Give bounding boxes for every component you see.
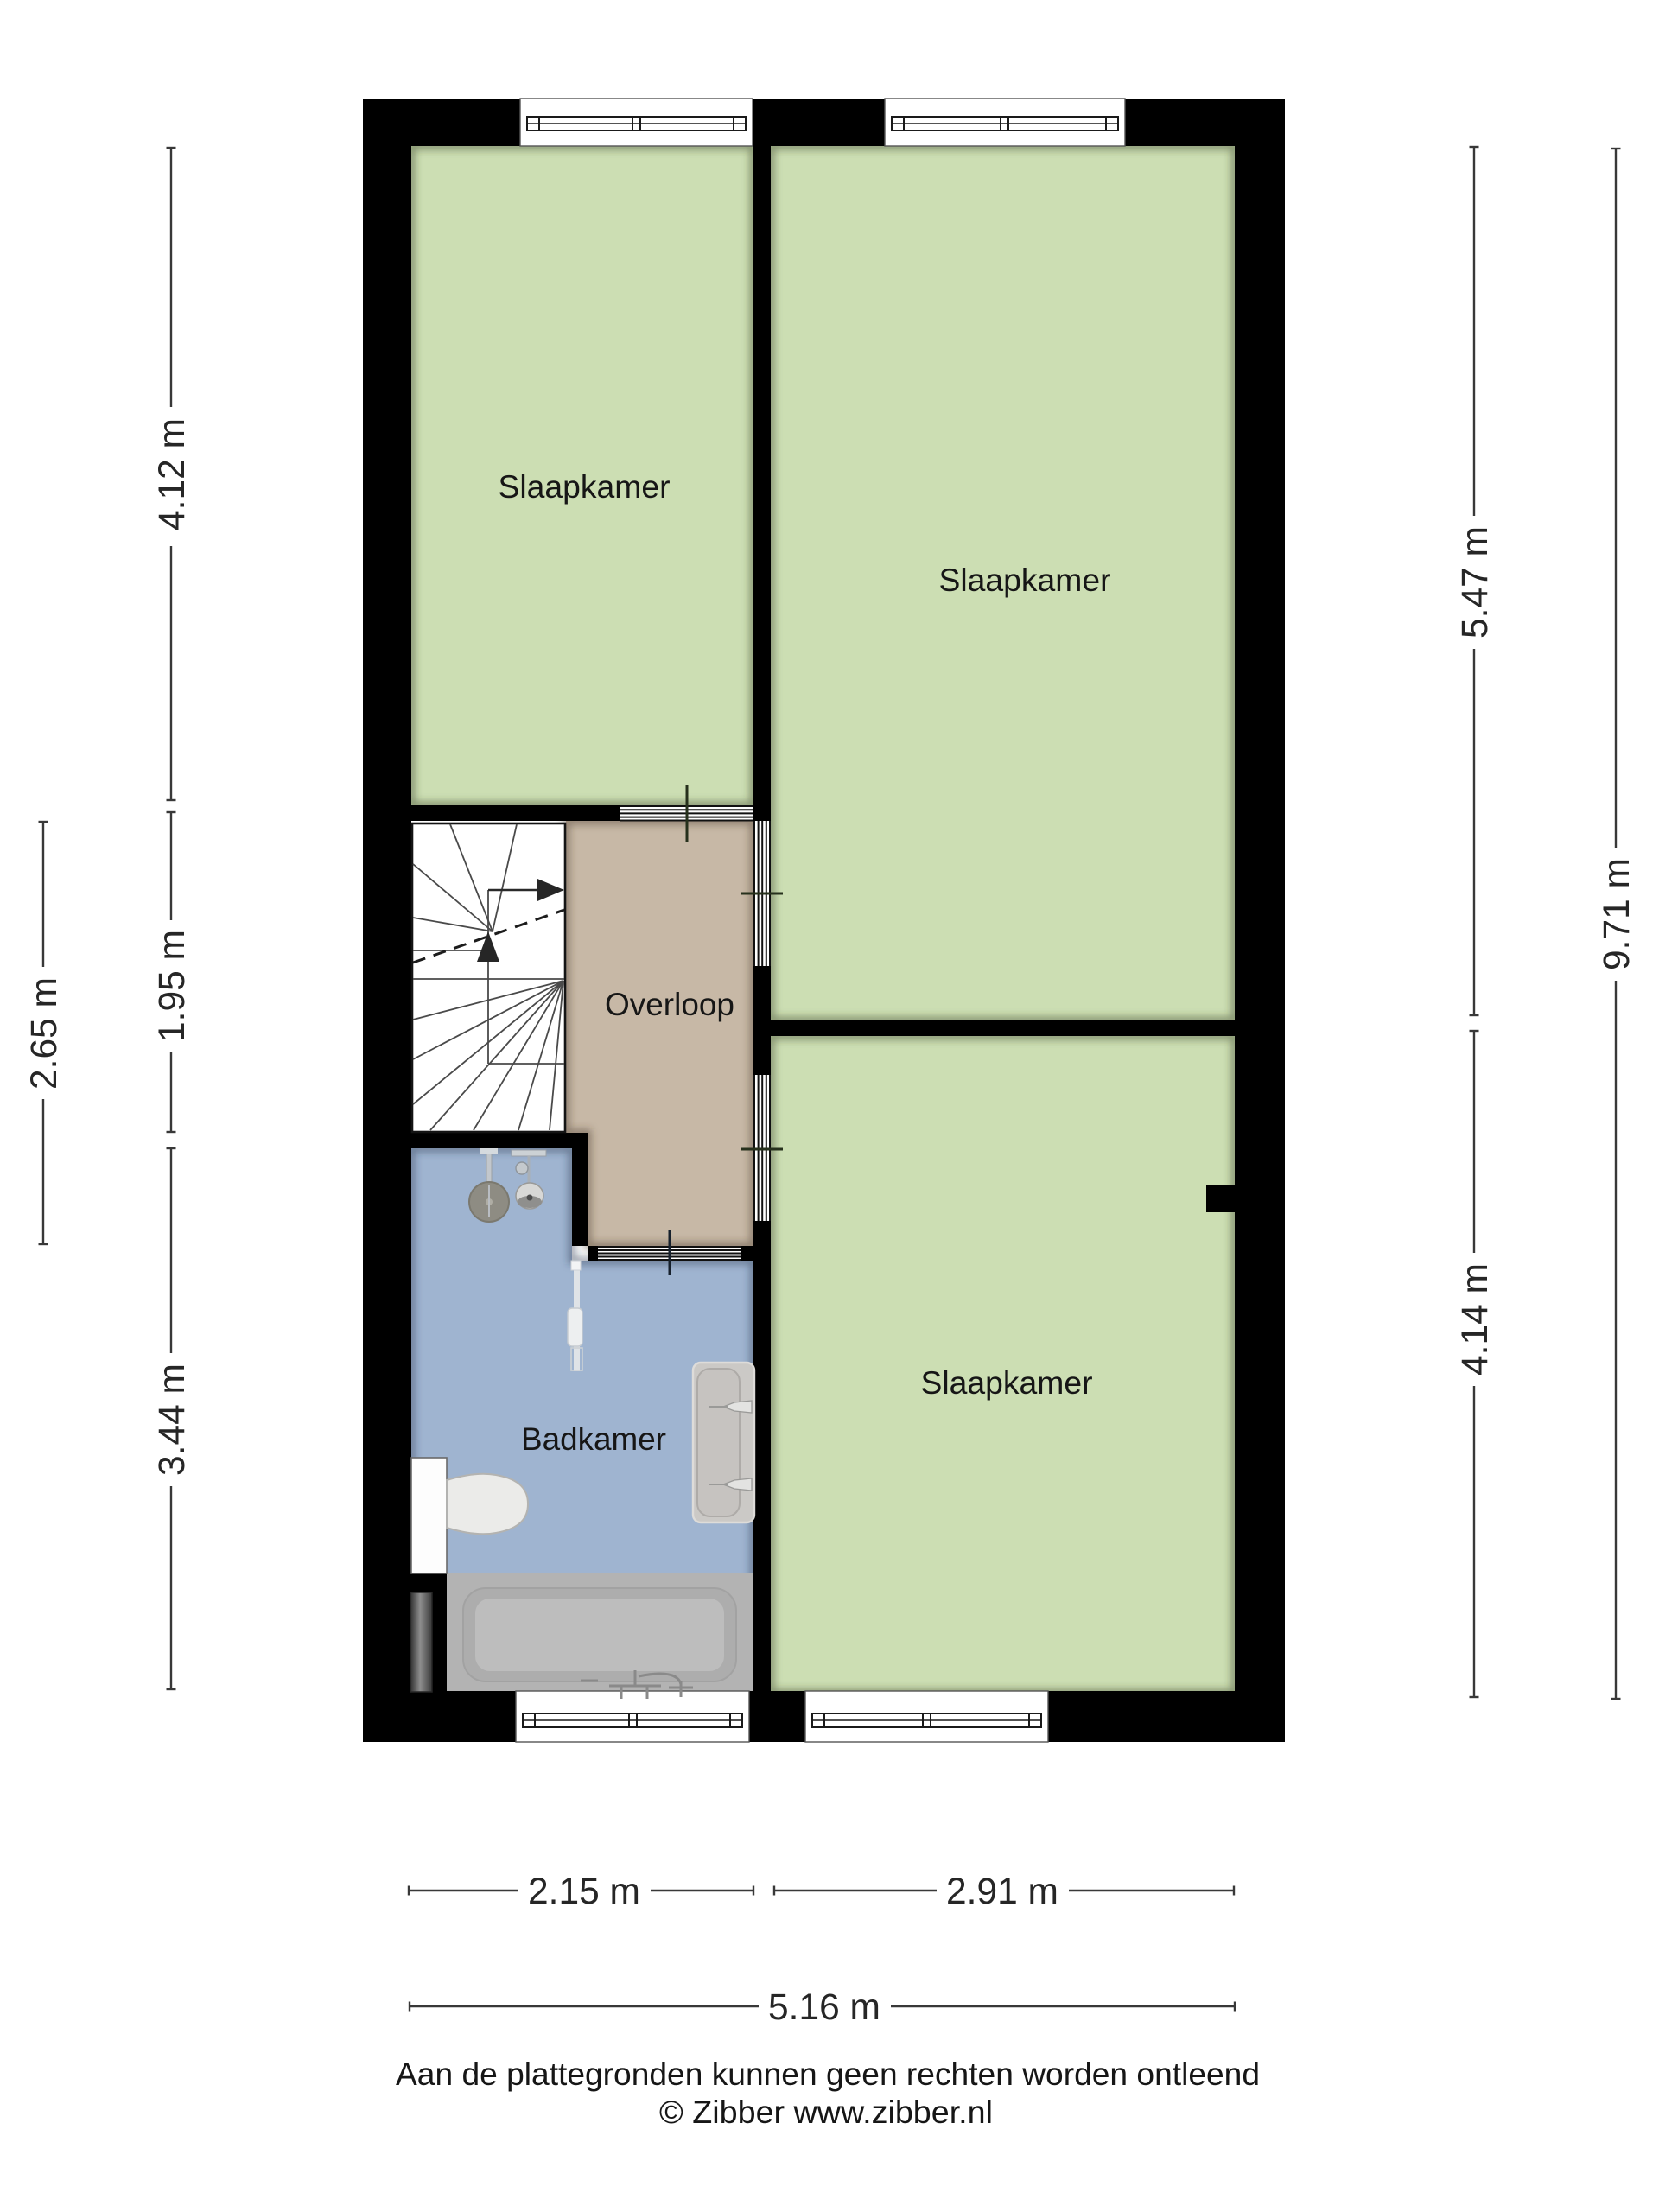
- svg-text:Overloop: Overloop: [605, 986, 734, 1022]
- svg-text:2.65 m: 2.65 m: [24, 977, 65, 1090]
- svg-text:Slaapkamer: Slaapkamer: [499, 468, 671, 505]
- svg-text:5.16 m: 5.16 m: [768, 1987, 880, 2028]
- svg-text:5.47 m: 5.47 m: [1455, 526, 1496, 639]
- svg-text:Aan de plattegronden kunnen ge: Aan de plattegronden kunnen geen rechten…: [396, 2056, 1260, 2092]
- svg-text:4.12 m: 4.12 m: [152, 418, 193, 531]
- svg-text:1.95 m: 1.95 m: [152, 930, 193, 1042]
- svg-text:2.91 m: 2.91 m: [946, 1872, 1058, 1912]
- svg-text:3.44 m: 3.44 m: [152, 1363, 193, 1476]
- svg-text:Slaapkamer: Slaapkamer: [921, 1364, 1093, 1401]
- svg-text:2.15 m: 2.15 m: [528, 1872, 640, 1912]
- svg-text:Slaapkamer: Slaapkamer: [939, 562, 1111, 598]
- svg-text:9.71 m: 9.71 m: [1597, 858, 1637, 970]
- svg-text:© Zibber www.zibber.nl: © Zibber www.zibber.nl: [659, 2094, 993, 2130]
- svg-text:Badkamer: Badkamer: [521, 1421, 666, 1457]
- svg-text:4.14 m: 4.14 m: [1455, 1263, 1496, 1376]
